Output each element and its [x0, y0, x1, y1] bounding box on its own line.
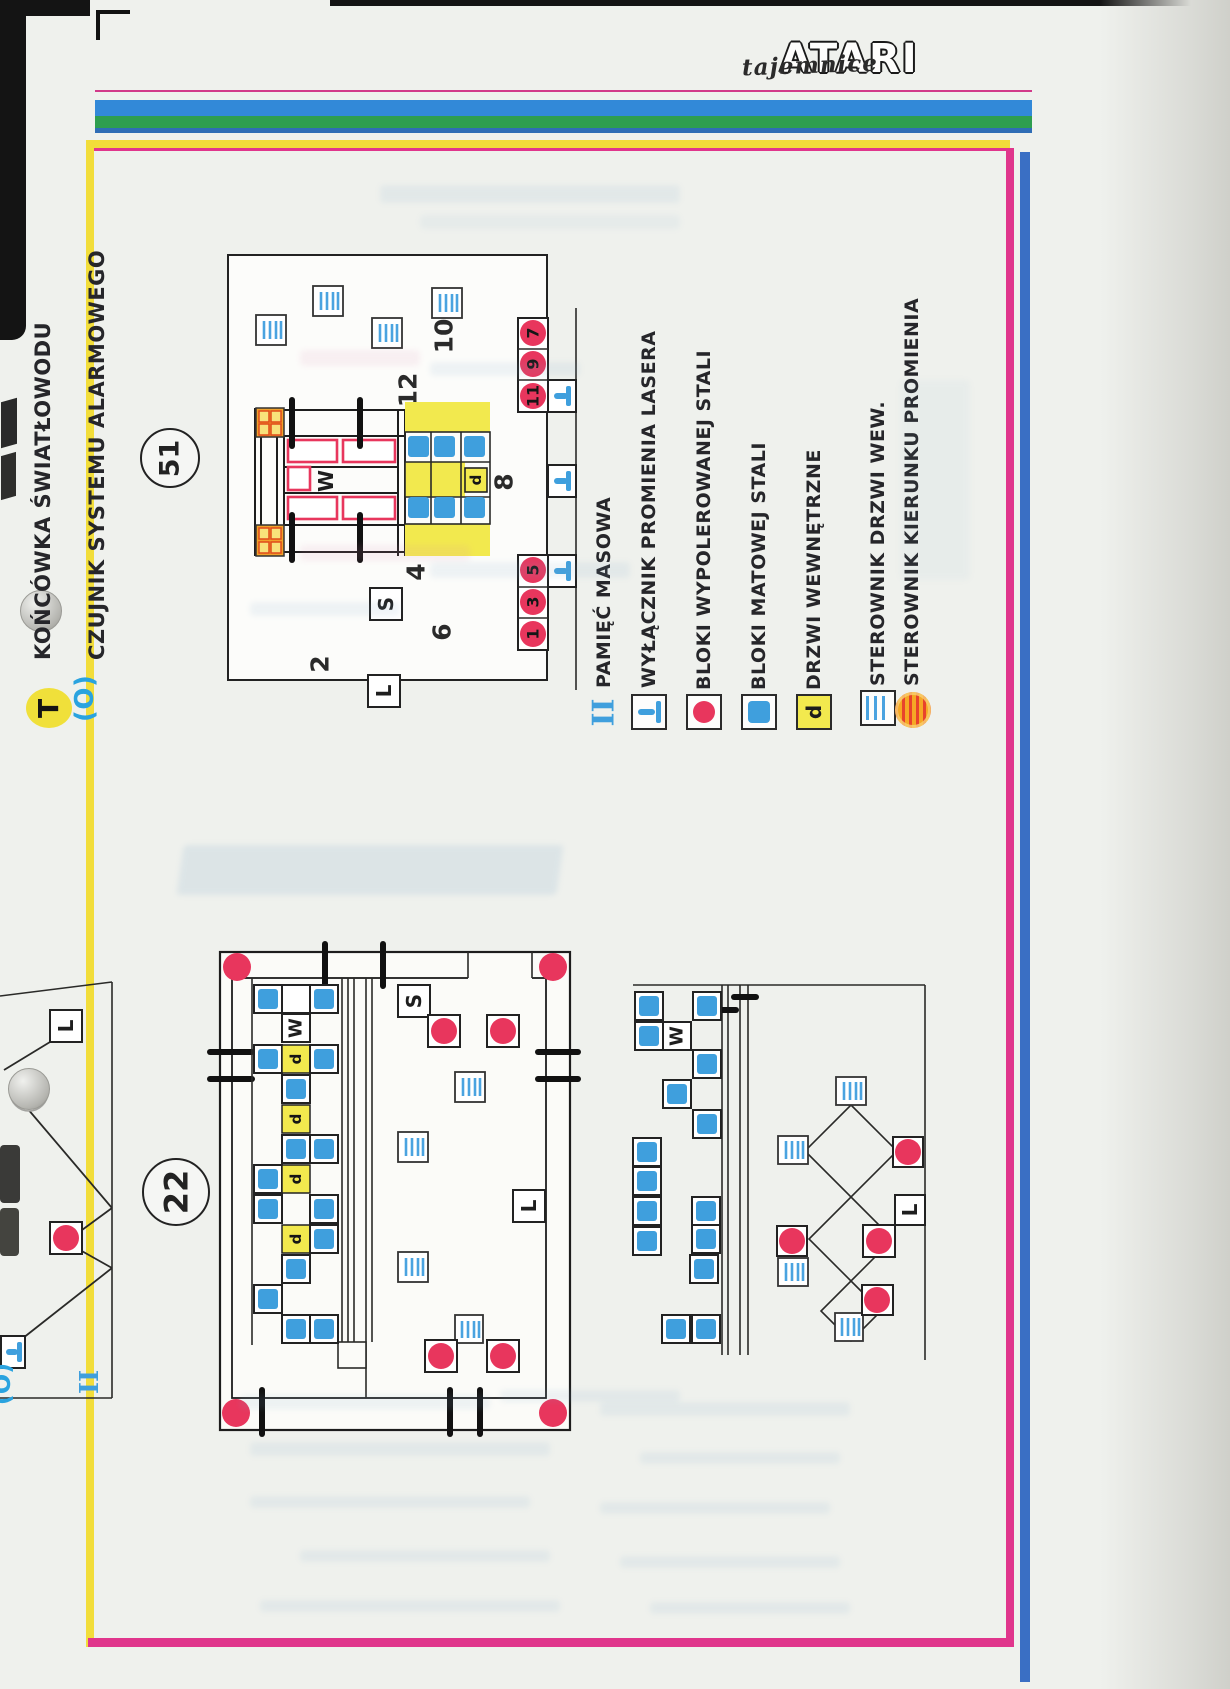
door-controller-marker — [835, 1313, 863, 1341]
fiber-junction-block — [256, 525, 284, 556]
matte-steel-block — [408, 497, 429, 518]
scan-left-edge — [0, 0, 26, 340]
bleed-smudge — [600, 1502, 830, 1514]
door-cell: d — [282, 1045, 310, 1073]
frame-top — [86, 140, 1010, 148]
steel-cell — [282, 1135, 310, 1163]
polished-steel-box — [862, 1285, 893, 1315]
hole-punch — [8, 1068, 50, 1110]
steel-cell — [254, 1165, 282, 1193]
page-edge-shade — [1100, 0, 1230, 1689]
room-number-10: 10 — [430, 319, 459, 354]
polished-steel-box — [50, 1222, 82, 1254]
storage-box-s: S — [370, 588, 402, 620]
bleed-smudge — [250, 1496, 530, 1508]
polished-steel-icon — [686, 694, 722, 730]
polished-steel-box — [863, 1225, 895, 1257]
w-cell: W — [663, 1022, 691, 1050]
steel-cell — [254, 1045, 282, 1073]
map-51: 10 12 W — [218, 250, 578, 720]
frame-top-inner — [94, 148, 1010, 151]
fiber-junction-block — [256, 408, 284, 437]
elevator-box-l: L — [368, 675, 400, 707]
bleed-smudge — [420, 215, 680, 229]
map22-badge: 22 — [142, 1158, 210, 1226]
frame-right-outer — [1020, 152, 1030, 1682]
corner-steel — [222, 1399, 250, 1427]
polished-steel-box — [777, 1226, 807, 1256]
legend-label-beam-direction: STEROWNIK KIERUNKU PROMIENIA — [900, 298, 924, 686]
bleed-smudge — [620, 1556, 840, 1568]
legend-label-mass-storage: PAMIĘĆ MASOWA — [592, 497, 616, 688]
steel-cell — [633, 1167, 661, 1195]
fiber-endpoint-symbol: T — [26, 688, 72, 728]
matte-steel-block — [408, 436, 429, 457]
storage-box-s: S — [398, 985, 430, 1017]
frame-bottom — [88, 1638, 1014, 1647]
svg-text:d: d — [467, 475, 485, 486]
svg-text:L: L — [372, 684, 396, 697]
cell-strip: W — [633, 992, 721, 1343]
mass-storage-symbol: II — [75, 1370, 105, 1394]
door-controller-marker — [398, 1132, 428, 1162]
legend-label-polished-steel: BLOKI WYPOLEROWANEJ STALI — [692, 350, 716, 690]
w-cell: W — [282, 1014, 310, 1042]
beam-point-7: 7 — [524, 327, 543, 338]
steel-cell — [692, 1315, 720, 1343]
polished-steel-box — [428, 1015, 460, 1047]
laser-room — [288, 467, 310, 490]
header-stripe-teal — [95, 128, 1032, 133]
svg-text:L: L — [517, 1199, 541, 1212]
door-cell: d — [282, 1105, 310, 1133]
header-stripe-green — [95, 116, 1032, 128]
legend-label-matte-steel: BLOKI MATOWEJ STALI — [747, 442, 771, 690]
map-22: L (O) II — [0, 940, 600, 1440]
beam-point-1: 1 — [524, 628, 543, 639]
steel-cell — [692, 1197, 720, 1225]
legend-label-laser-switch: WYŁĄCZNIK PROMIENIA LASERA — [637, 331, 661, 688]
polished-steel-box — [893, 1137, 923, 1167]
door-controller-marker — [256, 315, 286, 345]
beam-point-5: 5 — [524, 564, 543, 575]
door-controller-marker — [778, 1258, 808, 1286]
laser-room — [343, 497, 395, 519]
door-controller-marker — [432, 288, 462, 318]
steel-cell — [282, 1075, 310, 1103]
steel-cell — [282, 1255, 310, 1283]
bleed-smudge — [380, 185, 680, 203]
map51-badge-number: 51 — [154, 439, 185, 477]
steel-cell — [693, 992, 721, 1020]
laser-room — [343, 440, 395, 462]
laser-switch-marker — [548, 465, 576, 497]
door-controller-marker — [313, 286, 343, 316]
matte-steel-block — [434, 497, 455, 518]
room-number-6: 6 — [428, 623, 457, 640]
laser-room — [288, 497, 337, 519]
beam-zone — [405, 402, 490, 432]
steel-cell — [633, 1138, 661, 1166]
steel-cell — [310, 1135, 338, 1163]
beam-point-11: 11 — [524, 385, 543, 407]
map-right: W — [580, 960, 950, 1380]
svg-text:d: d — [287, 1114, 305, 1125]
bleed-smudge — [650, 1602, 850, 1614]
beam-zone — [405, 524, 490, 556]
beam-point-9: 9 — [524, 358, 543, 369]
inner-door-icon: d — [796, 694, 832, 730]
steel-cell — [254, 985, 282, 1013]
legend-label-door-controller: STEROWNIK DRZWI WEW. — [866, 401, 890, 686]
bleed-smudge — [250, 1442, 550, 1456]
svg-text:d: d — [287, 1174, 305, 1185]
steel-cell — [310, 1315, 338, 1343]
polished-steel-box — [487, 1015, 519, 1047]
corner-steel — [223, 953, 251, 981]
room-number-8: 8 — [490, 473, 519, 490]
steel-cell — [310, 985, 338, 1013]
beam-point-column: 7 9 11 — [518, 318, 576, 412]
matte-steel-block — [434, 436, 455, 457]
polished-steel-box — [425, 1340, 457, 1372]
alarm-sensor-label: CZUJNIK SYSTEMU ALARMOWEGO — [84, 250, 110, 660]
mass-storage-icon: II — [584, 692, 624, 732]
svg-text:L: L — [898, 1203, 922, 1216]
label-w: W — [314, 470, 338, 492]
steel-cell — [662, 1315, 690, 1343]
steel-cell — [633, 1197, 661, 1225]
annex-elevator-l: L — [50, 1010, 82, 1042]
steel-cell — [635, 992, 663, 1020]
empty-cell — [282, 985, 310, 1013]
staple-mark — [1, 452, 16, 500]
svg-text:d: d — [287, 1234, 305, 1245]
matte-steel-icon — [741, 694, 777, 730]
svg-text:W: W — [286, 1018, 307, 1038]
steel-cell — [310, 1225, 338, 1253]
steel-cell — [690, 1255, 718, 1283]
room-number-4: 4 — [402, 563, 431, 580]
bleed-smudge — [640, 1452, 840, 1464]
header-stripe-blue — [95, 100, 1032, 116]
svg-text:S: S — [374, 597, 398, 611]
corner-steel — [539, 1399, 567, 1427]
door-cell: d — [282, 1165, 310, 1193]
steel-cell — [693, 1050, 721, 1078]
steel-cell — [693, 1110, 721, 1138]
door-controller-marker — [836, 1077, 866, 1105]
door-controller-marker — [778, 1136, 808, 1164]
steel-cell — [310, 1045, 338, 1073]
door-controller-marker — [455, 1072, 485, 1102]
svg-text:W: W — [667, 1026, 688, 1046]
steel-cell — [663, 1080, 691, 1108]
polished-steel-box — [487, 1340, 519, 1372]
fiber-endpoint-label: KOŃCÓWKA ŚWIATŁOWODU — [30, 322, 56, 660]
svg-text:S: S — [402, 994, 426, 1008]
beam-zone — [405, 462, 465, 497]
door-controller-marker — [398, 1252, 428, 1282]
elevator-box-l: L — [513, 1190, 545, 1222]
steel-cell — [310, 1195, 338, 1223]
crop-mark — [96, 10, 130, 40]
alarm-sensor-symbol: (O) — [72, 675, 98, 722]
alarm-symbol-partial: (O) — [0, 1363, 16, 1405]
room-number-2: 2 — [306, 655, 335, 672]
beam-point-3: 3 — [524, 596, 543, 607]
frame-right — [1006, 148, 1014, 1647]
scanned-magazine-page: ATARI tajemnice KOŃCÓWKA ŚWIATŁOWODU CZU… — [0, 0, 1230, 1689]
fiber-symbol-letter: T — [32, 698, 65, 717]
bleed-smudge — [600, 1402, 850, 1416]
logo-script: tajemnice — [742, 50, 879, 82]
svg-text:L: L — [54, 1019, 78, 1032]
header-rule — [95, 90, 1032, 92]
steel-cell — [254, 1285, 282, 1313]
inner-door-marker: d — [465, 468, 487, 492]
laser-switch-icon — [631, 694, 667, 730]
steel-cell — [692, 1225, 720, 1253]
legend-label-inner-door: DRZWI WEWNĘTRZNE — [802, 449, 826, 690]
svg-text:d: d — [287, 1054, 305, 1065]
bleed-smudge — [176, 845, 563, 895]
corner-steel — [539, 953, 567, 981]
steel-cell — [254, 1195, 282, 1223]
bleed-smudge — [260, 1600, 560, 1612]
map22-badge-number: 22 — [157, 1170, 195, 1215]
matte-steel-block — [464, 436, 485, 457]
door-controller-marker — [455, 1315, 483, 1343]
bleed-smudge — [300, 1550, 550, 1562]
beam-direction-icon — [895, 692, 931, 728]
matte-steel-block — [464, 497, 485, 518]
door-cell: d — [282, 1225, 310, 1253]
steel-cell — [635, 1022, 663, 1050]
map51-badge: 51 — [140, 428, 200, 488]
staple-mark — [1, 398, 17, 449]
steel-cell — [282, 1315, 310, 1343]
magazine-logo: ATARI tajemnice — [742, 36, 942, 86]
elevator-box-l: L — [895, 1195, 925, 1225]
scan-top-line — [330, 0, 1230, 6]
door-controller-icon — [860, 690, 896, 726]
laser-room — [288, 440, 337, 462]
beam-point-column: 5 3 1 — [518, 555, 576, 650]
door-controller-marker — [372, 318, 402, 348]
steel-cell — [633, 1227, 661, 1255]
